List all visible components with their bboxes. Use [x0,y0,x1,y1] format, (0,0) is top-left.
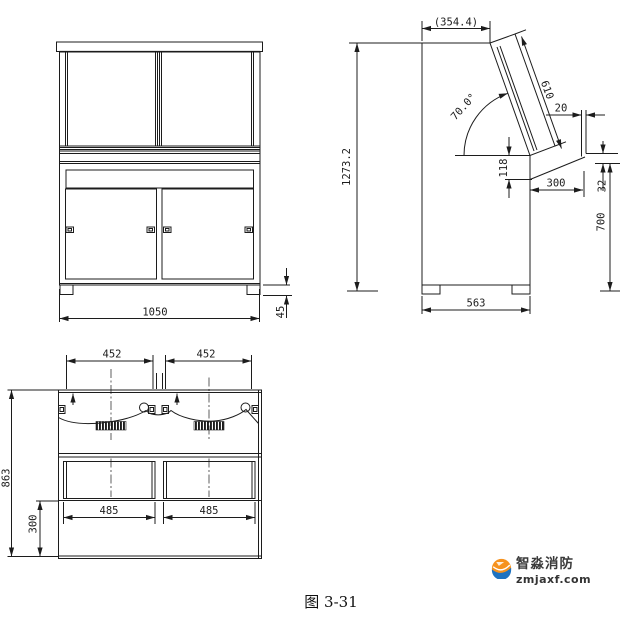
dim-panel-angle: 70.0° [449,91,479,123]
side-right-foot [512,285,530,294]
dim-front-width: 1050 [142,307,167,319]
cabinet-drawing-svg: 1050 45 (354.4) 1273.2 [0,0,620,617]
glass-door-stiles [66,52,254,146]
dim-left-door-width: 452 [103,349,122,361]
dim-right-bay-width: 485 [200,505,219,517]
latch-blocks [59,406,259,414]
grommet-right [241,403,250,412]
counter-bands [60,146,261,164]
dim-panel-length: 610 [538,79,556,101]
rear-outline [59,390,262,559]
dim-total-height: 1273.2 [341,148,353,186]
dim-desk-height: 700 [596,213,608,232]
technical-drawing-page: 1050 45 (354.4) 1273.2 [0,0,620,617]
dim-desk-depth: 300 [547,178,566,190]
front-outline [57,42,263,295]
dim-lip-thickness: 20 [555,103,568,115]
front-view: 1050 45 [57,42,293,322]
grommet-left [140,403,149,412]
centerlines [111,369,209,497]
rear-dimensions: 452 452 863 300 485 485 [1,349,256,557]
watermark-logo: 智淼消防 zmjaxf.com [491,558,591,585]
left-bay [64,462,156,499]
section-break-line [59,410,259,424]
dim-base-depth: 563 [467,298,486,310]
side-outline [349,34,586,294]
dim-rear-height: 863 [1,469,13,488]
logo-text-block: 智淼消防 zmjaxf.com [516,558,591,585]
side-left-foot [422,285,440,294]
left-foot [60,285,73,295]
left-door [66,189,157,279]
front-lip [582,110,587,157]
right-door [162,189,254,279]
dim-top-depth: (354.4) [434,17,478,29]
right-foot [247,285,260,295]
rear-view: 452 452 863 300 485 485 [1,349,262,559]
rear-details [59,369,259,497]
door-handles [66,227,253,233]
side-dimensions: (354.4) 1273.2 610 70.0° 20 118 [341,17,620,315]
figure-caption: 图 3-31 [261,591,401,612]
logo-globe-icon [491,558,512,579]
dim-right-door-width: 452 [197,349,216,361]
desk-underside-slant [530,157,585,180]
dim-front-edge-drop: 32 [597,180,609,193]
dim-left-bay-width: 485 [100,505,119,517]
dim-front-foot-height: 45 [275,306,287,319]
dim-plinth-height: 300 [28,515,40,534]
logo-company-name: 智淼消防 [516,558,591,572]
logo-domain: zmjaxf.com [516,574,591,585]
dim-desk-drop: 118 [498,159,510,178]
side-view: (354.4) 1273.2 610 70.0° 20 118 [341,17,620,315]
drawer-panel [66,170,254,188]
